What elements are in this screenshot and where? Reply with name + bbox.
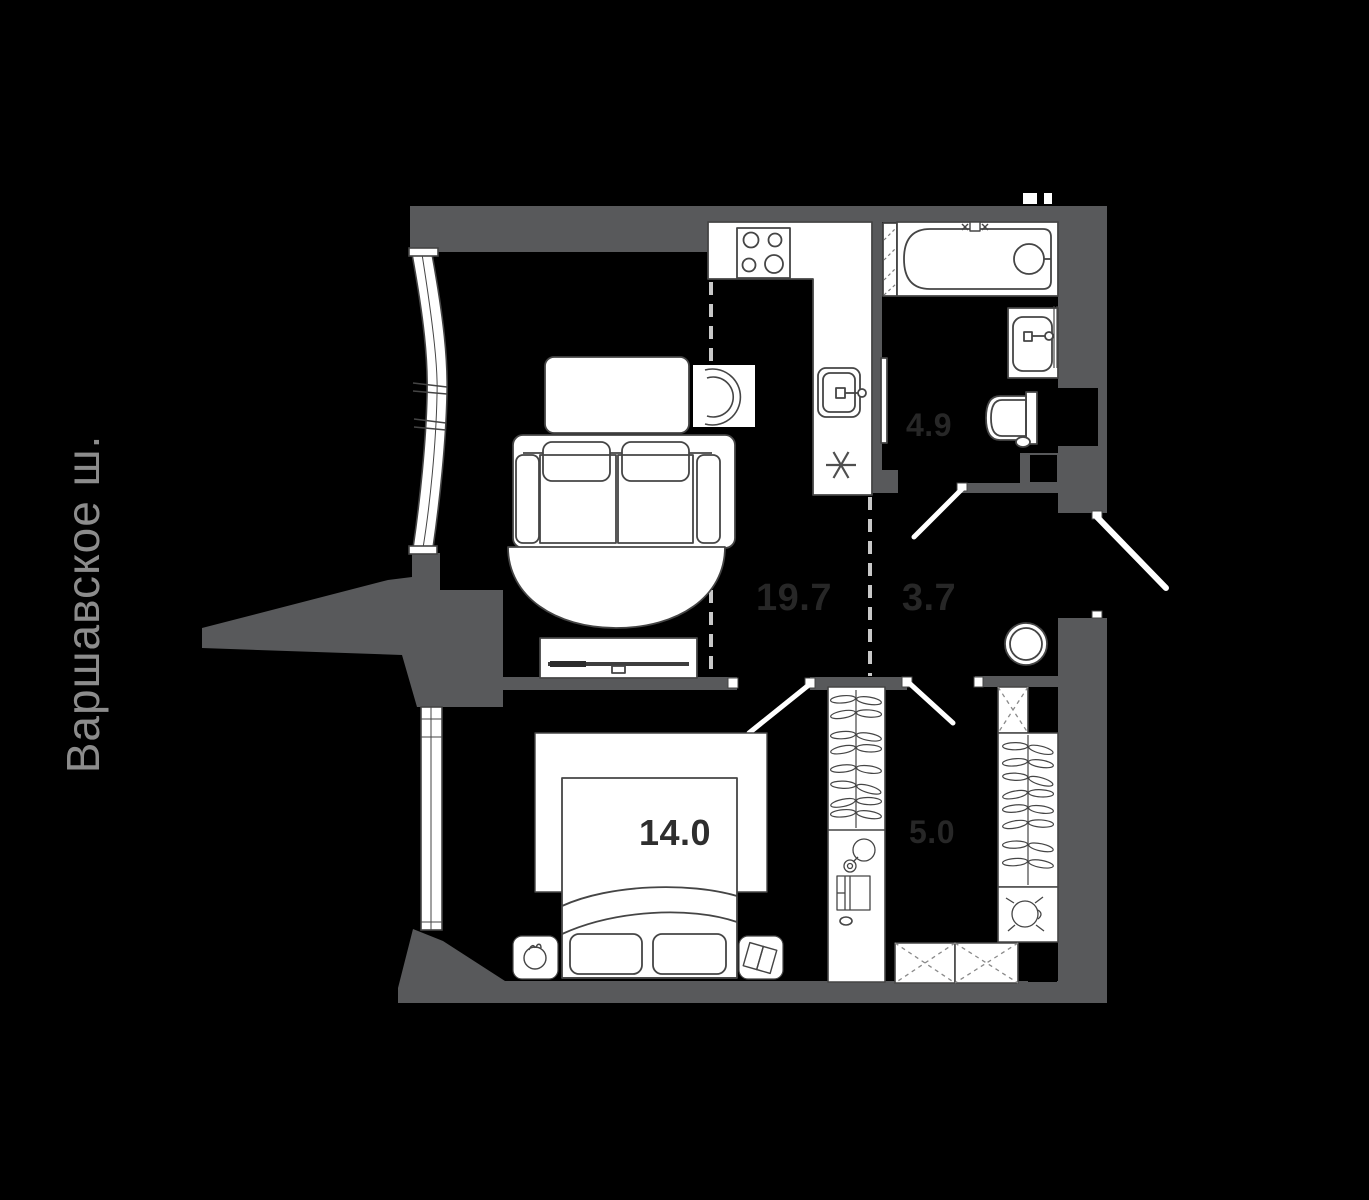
area-label-hallway: 3.7	[902, 577, 956, 619]
sofa-armrest-right	[697, 455, 720, 543]
bedroom-door-leaf	[749, 684, 810, 733]
dining-table-icon	[545, 357, 689, 433]
chair-pad	[693, 365, 755, 427]
sofa-cushion-left	[543, 442, 610, 481]
tv-dark-segment	[550, 661, 586, 667]
bedroom	[513, 733, 783, 979]
wall-kitchen-bath	[872, 206, 882, 493]
living-room	[508, 357, 755, 678]
wall-top-left	[410, 206, 708, 252]
nightstand-left	[513, 936, 558, 979]
shaft-notch-hall	[1030, 455, 1057, 482]
area-label-bedroom: 14.0	[639, 812, 711, 853]
wall-vent-marks	[1023, 193, 1052, 204]
wall-left-wedge	[202, 553, 503, 707]
shaft-notch-closet-bottom	[1028, 950, 1057, 982]
water-heater-icon	[1005, 623, 1047, 665]
area-label-living-kitchen: 19.7	[756, 577, 832, 619]
bathroom-door-leaf	[914, 489, 962, 537]
bed-pillow-right	[653, 934, 726, 974]
curved-window-cap-bottom	[409, 546, 437, 554]
tv-stand	[612, 666, 625, 673]
bathtub-icon	[897, 222, 1058, 296]
area-label-wardrobe: 5.0	[909, 814, 955, 850]
sofa-armrest-left	[516, 455, 539, 543]
wardrobe-door-leaf	[908, 682, 953, 723]
vent-mark-2	[1044, 193, 1052, 204]
street-label: Варшавское ш.	[57, 435, 109, 774]
floor-plan-svg: Варшавское ш. 19.7 3.7 4.9 14.0 5.0	[0, 0, 1369, 1200]
vent-mark-1	[1023, 193, 1037, 204]
sofa-cushion-right	[622, 442, 689, 481]
towel-rail-icon	[881, 358, 887, 443]
curved-window-cap-top	[409, 248, 438, 256]
wall-mid-c	[975, 676, 1058, 687]
dressing-chair-box	[998, 887, 1058, 942]
bed-pillow-left	[570, 934, 642, 974]
wall-mid-a	[503, 677, 737, 690]
toilet-icon	[986, 392, 1037, 447]
shaft-notch-bath	[1048, 388, 1098, 446]
wall-right-lower	[1058, 618, 1107, 1003]
floor-plan-screenshot: Варшавское ш. 19.7 3.7 4.9 14.0 5.0	[0, 0, 1369, 1200]
round-rug-icon	[508, 547, 725, 628]
hallway	[1005, 623, 1047, 665]
wall-hall-top	[960, 483, 1058, 493]
entry-door-leaf	[1097, 517, 1166, 588]
wall-top-thin	[708, 206, 1107, 222]
wall-right-upper	[1058, 206, 1107, 513]
shaft-notch-closet-top	[1037, 687, 1057, 724]
area-label-bathroom: 4.9	[906, 407, 952, 443]
